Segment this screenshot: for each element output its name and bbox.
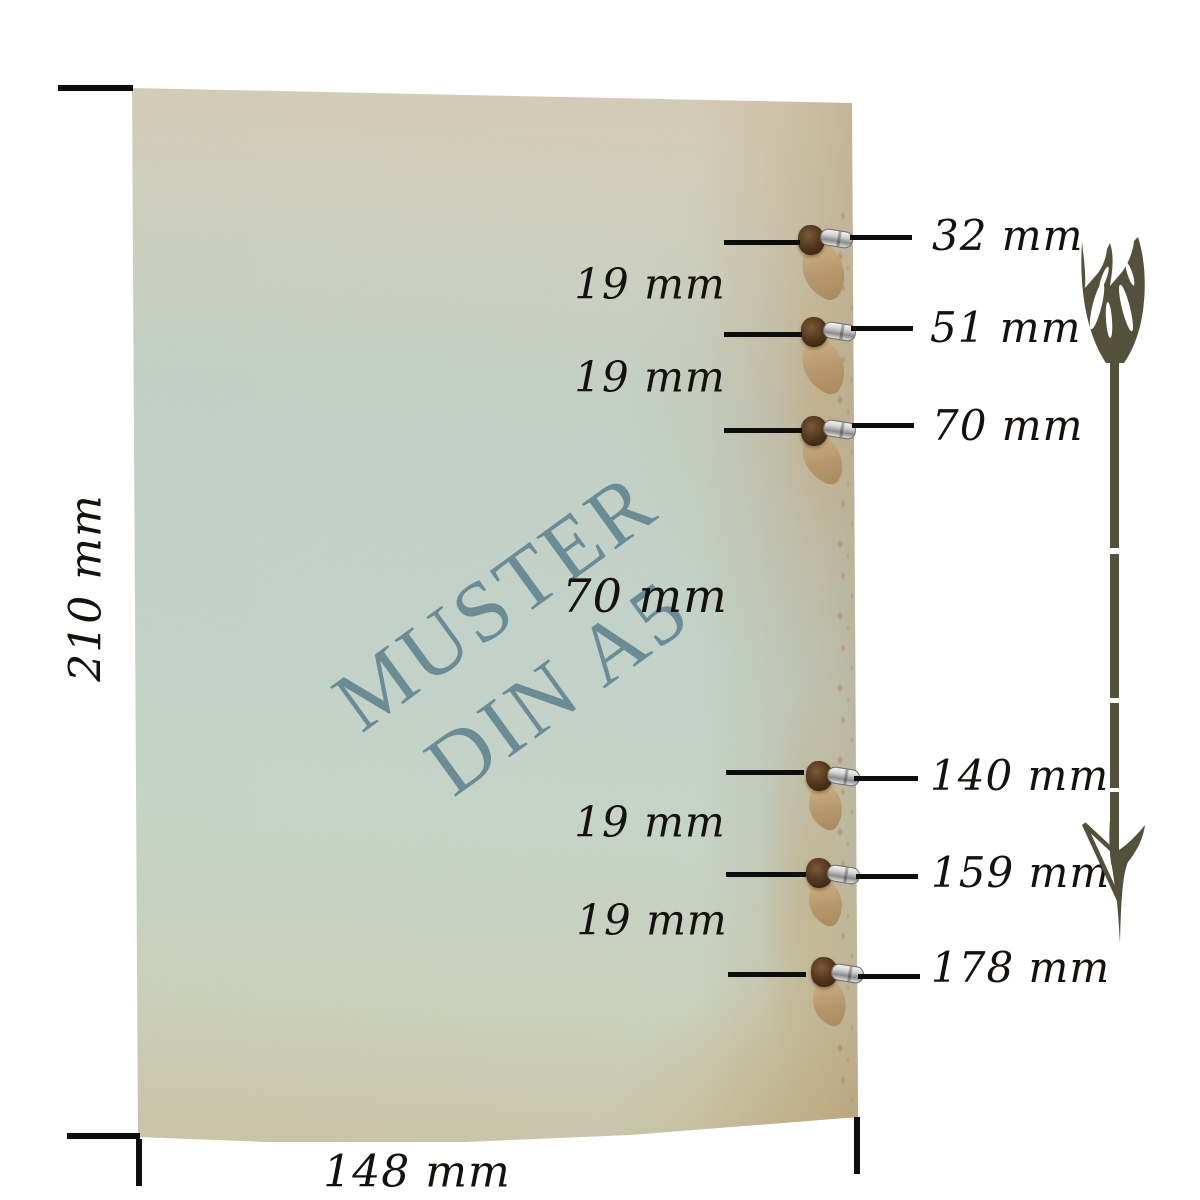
sheet-width-label: 148 mm: [323, 1147, 510, 1198]
leader-line: [726, 770, 804, 775]
leader-line: [724, 240, 800, 245]
gap-label-19mm: 19 mm: [574, 353, 725, 402]
leader-line: [854, 776, 918, 781]
gap-label-19mm: 19 mm: [574, 260, 725, 309]
leader-line: [724, 332, 802, 337]
leader-line: [850, 235, 912, 240]
diagram-canvas: MUSTER DIN A5 32 mm 51 mm 70 mm 140 mm 1…: [0, 0, 1200, 1200]
leader-line: [726, 872, 806, 877]
gap-label-19mm: 19 mm: [576, 896, 727, 945]
dimension-tick-top-left: [58, 85, 133, 91]
hole-position-label-51mm: 51 mm: [930, 303, 1081, 352]
dimension-tick-bottom-left: [67, 1133, 140, 1139]
leader-line: [856, 874, 918, 879]
leader-line: [851, 326, 913, 331]
sheet-height-label: 210 mm: [61, 494, 112, 681]
leader-line: [852, 423, 914, 428]
leader-line: [858, 974, 920, 979]
feathered-arrow-down-icon: [1060, 228, 1170, 958]
leader-line: [728, 972, 806, 977]
dimension-tick-bottom-left-vertical: [136, 1139, 142, 1186]
gap-label-70mm: 70 mm: [562, 569, 727, 623]
gap-label-19mm: 19 mm: [574, 798, 725, 847]
leader-line: [724, 428, 802, 433]
dimension-tick-bottom-right-vertical: [854, 1117, 860, 1174]
